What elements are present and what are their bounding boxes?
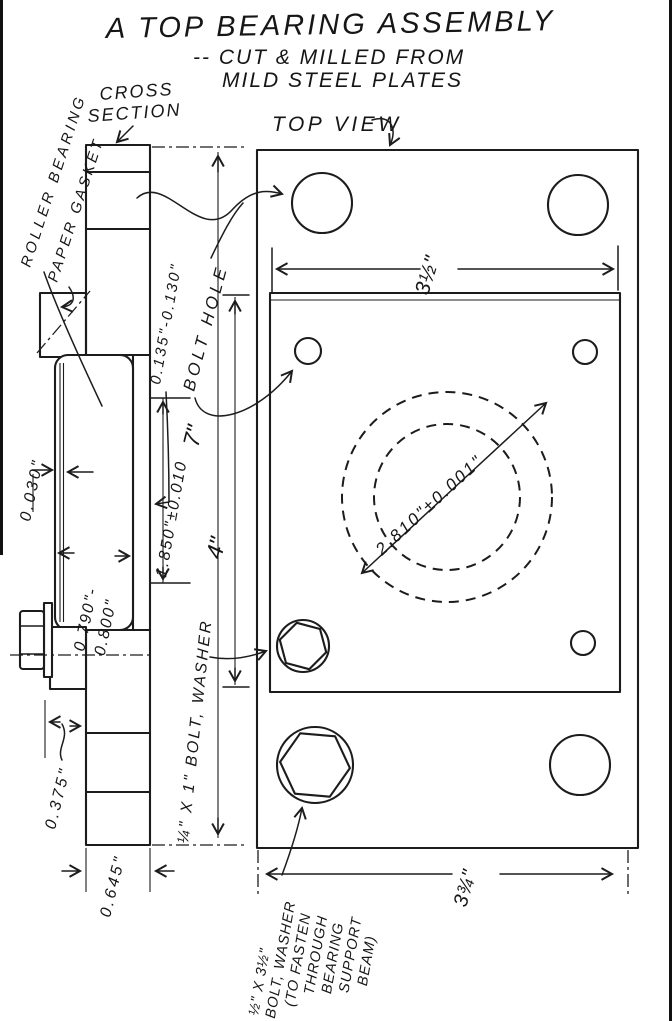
- title-line-2: -- CUT & MILLED FROM: [193, 46, 465, 69]
- plate-bottom-bolt-hole-gap: [86, 733, 150, 792]
- dim-v4-label: 4": [201, 533, 232, 561]
- engineering-drawing: A TOP BEARING ASSEMBLY -- CUT & MILLED F…: [0, 0, 672, 1021]
- dim-boss-label: 0.375": [42, 765, 74, 831]
- dim-0030-label: 0.030": [17, 457, 47, 523]
- quarter-hole-bottom-right: [571, 631, 595, 655]
- bolt-hole-label: BOLT HOLE: [180, 262, 232, 393]
- dim-boss-squiggle: [60, 724, 64, 760]
- housing-top-lip: [40, 293, 86, 357]
- title-line-1: A TOP BEARING ASSEMBLY: [104, 5, 556, 45]
- quarter-hole-top-left: [295, 338, 321, 364]
- quarter-bolt-label: ¼" X 1" BOLT, WASHER: [175, 618, 215, 844]
- plate-bottom-cap: [86, 792, 150, 845]
- top-view-label: TOP VIEW: [272, 113, 402, 136]
- half-inch-hole-top-right: [548, 175, 608, 235]
- bolt-hole-leader-branch: [211, 203, 243, 258]
- plate-web-strip: [133, 355, 150, 630]
- dim-thick-label: 0.645": [97, 853, 129, 919]
- dim-wbot-label: 3¾": [450, 867, 482, 910]
- scanned-drawing-page: A TOP BEARING ASSEMBLY -- CUT & MILLED F…: [0, 0, 672, 1021]
- half-bolt-note-group: ½" X 3½" BOLT, WASHER (TO FASTEN THROUGH…: [246, 897, 383, 1021]
- dim-h7-label: 7": [178, 421, 209, 449]
- plate-top-bolt-hole-gap: [86, 172, 150, 229]
- cross-section-arrow: [117, 126, 133, 142]
- scan-artifact-left: [0, 0, 3, 555]
- half-inch-hole-bottom-right: [550, 735, 610, 795]
- half-inch-hole-top-left: [292, 173, 352, 233]
- quarter-hole-top-right: [573, 340, 597, 364]
- paper-gasket-leader: [62, 287, 73, 307]
- plate-upper-section: [86, 229, 150, 355]
- dim-depth-label: 1.850"±0.010: [153, 459, 190, 579]
- washer-side-view: [44, 603, 52, 677]
- title-line-3: MILD STEEL PLATES: [222, 69, 463, 92]
- hex-bolt-head-side: [20, 611, 44, 669]
- dim-step-label: 0.135"-0.130": [147, 261, 185, 385]
